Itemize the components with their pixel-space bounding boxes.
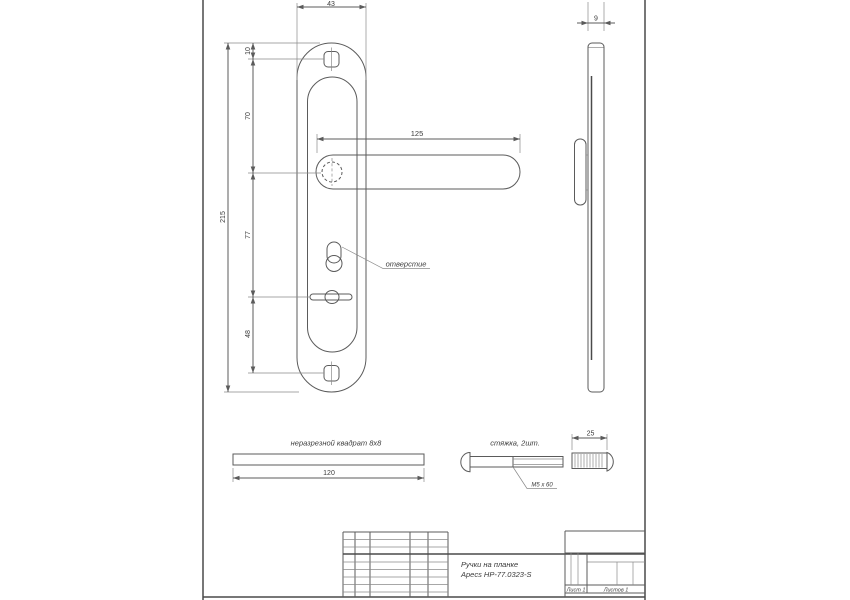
tie-screw-label: стяжка, 2шт. xyxy=(490,439,540,448)
keyhole xyxy=(326,242,342,272)
handle-side-profile xyxy=(575,139,589,205)
sheet-label: Лист 1 xyxy=(566,588,586,594)
dim-48: 48 xyxy=(245,330,252,338)
sheets-label: Листов 1 xyxy=(603,588,629,594)
dim-25: 25 xyxy=(587,431,595,438)
square-bar-label: неразрезной квадрат 8х8 xyxy=(291,439,382,448)
spindle-slot xyxy=(310,291,352,304)
thread-note: М5 х 60 xyxy=(531,483,553,489)
screw-shaft xyxy=(470,457,563,468)
dim-70: 70 xyxy=(245,112,252,120)
dim-10: 10 xyxy=(245,47,252,55)
doc-name-line2: Apecs HP-77.0323-S xyxy=(460,570,531,579)
screw-head xyxy=(461,452,470,471)
keyhole-callout: отверстие xyxy=(386,260,427,269)
title-block: Ручки на планке Apecs HP-77.0323-S Лист … xyxy=(343,531,645,597)
front-view-dimensions: 43 125 10 70 77 48 215 отверстие xyxy=(220,1,520,392)
screw-hole-top xyxy=(324,48,339,72)
drawing-sheet: 43 125 10 70 77 48 215 отверстие xyxy=(0,0,850,600)
sheet-frame xyxy=(203,0,645,600)
dim-215: 215 xyxy=(220,211,227,223)
doc-name-line1: Ручки на планке xyxy=(461,560,518,569)
sleeve xyxy=(572,453,613,472)
side-view: 9 xyxy=(575,2,616,392)
engineering-drawing: 43 125 10 70 77 48 215 отверстие xyxy=(0,0,850,600)
dim-77: 77 xyxy=(245,231,252,239)
screw-hole-bottom xyxy=(324,362,339,386)
dim-125: 125 xyxy=(411,129,424,138)
detail-tie-screw: стяжка, 2шт. М5 х 60 25 xyxy=(461,431,613,489)
dim-120: 120 xyxy=(323,470,335,477)
detail-square-bar: неразрезной квадрат 8х8 120 xyxy=(233,439,424,483)
front-view-plate xyxy=(297,43,520,392)
handle-hub xyxy=(322,158,342,186)
handle-lever xyxy=(316,155,520,189)
dim-43: 43 xyxy=(327,1,335,8)
dim-9: 9 xyxy=(594,16,598,23)
